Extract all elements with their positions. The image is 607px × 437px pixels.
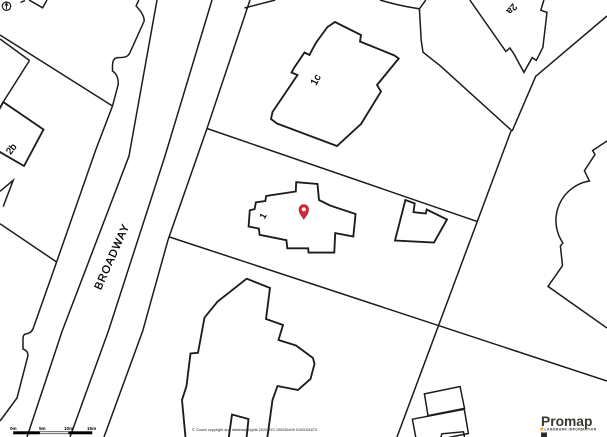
svg-text:© Crown copyright and database: © Crown copyright and database rights 20… [192,428,317,432]
svg-text:5m: 5m [39,426,46,431]
svg-text:0m: 0m [10,426,17,431]
svg-text:LANDMARK INFORMATION: LANDMARK INFORMATION [545,428,597,432]
svg-text:10m: 10m [64,426,73,431]
svg-text:15m: 15m [87,426,96,431]
